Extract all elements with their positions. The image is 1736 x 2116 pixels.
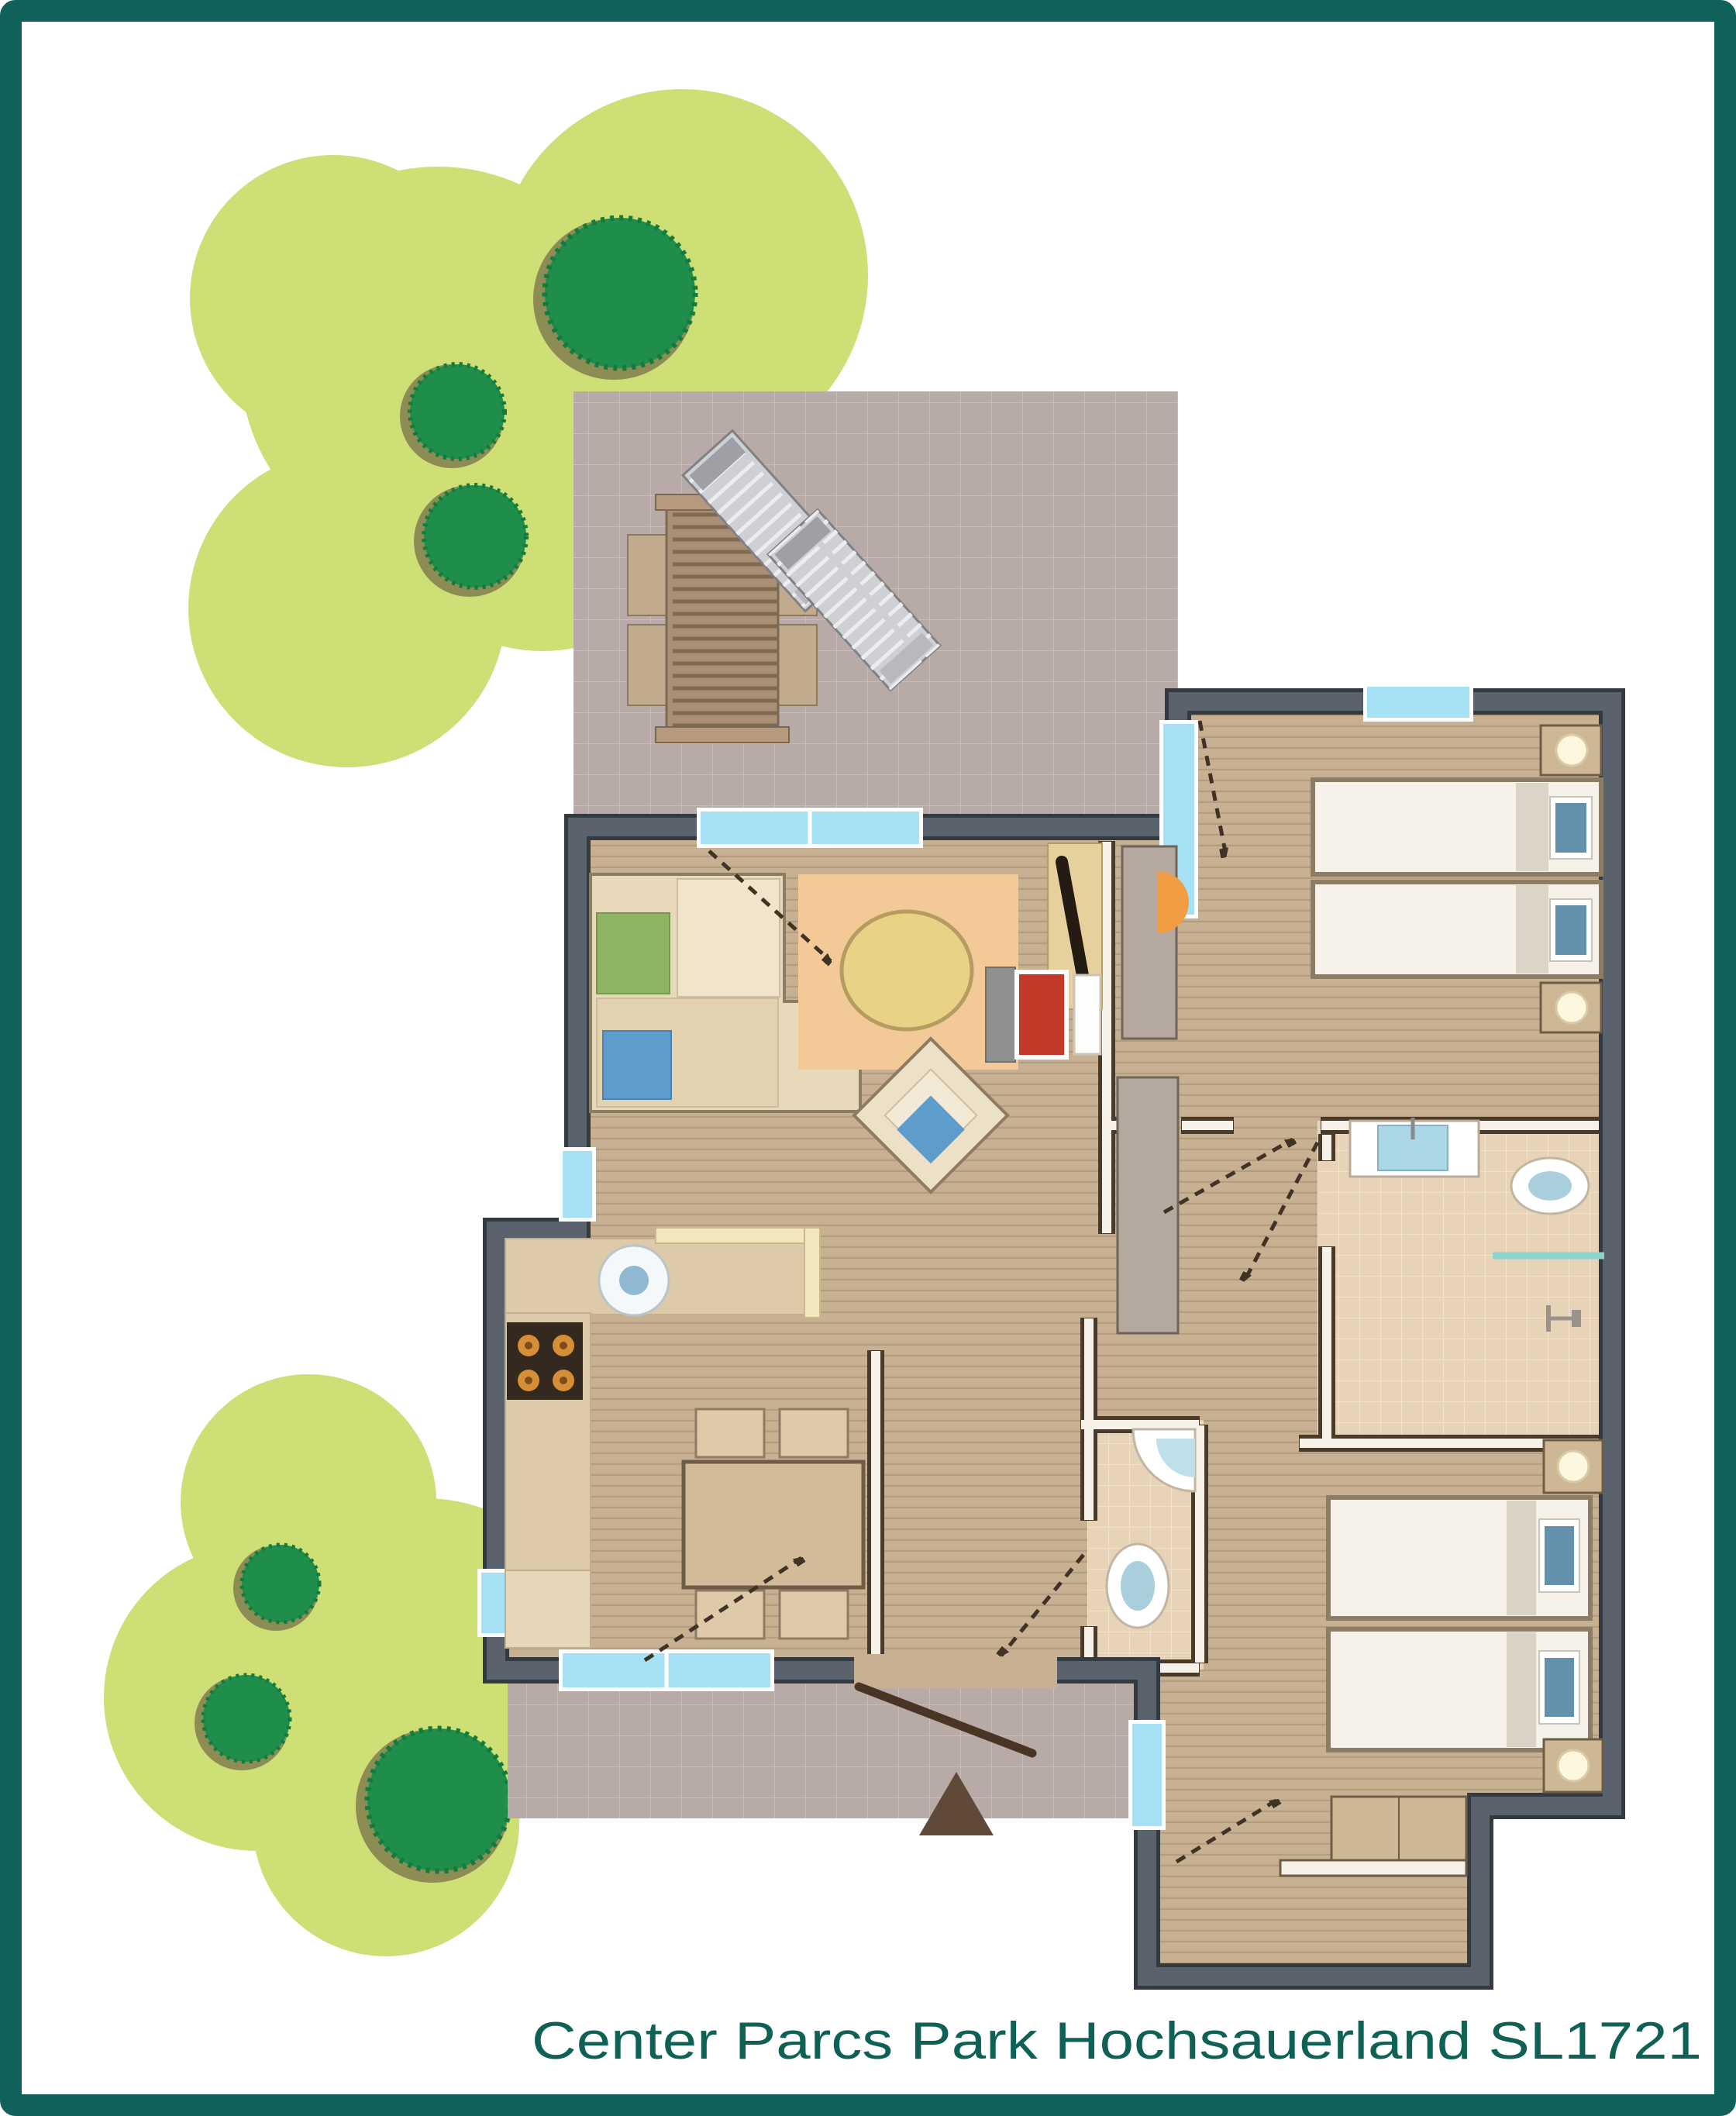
bed-fold (1507, 1632, 1536, 1747)
window (1132, 1724, 1162, 1826)
tree (242, 1545, 319, 1622)
kitchen-sink-basin (619, 1266, 649, 1295)
hob-burner-dot (560, 1377, 567, 1384)
lamp (1556, 735, 1587, 766)
pillow-blue (1545, 1526, 1574, 1585)
pillow-blue (1545, 1658, 1574, 1717)
terrace-chair (628, 535, 670, 615)
hob-burner-dot (525, 1377, 532, 1384)
sofa-cushion-blue (603, 1031, 671, 1099)
stove-bench (1074, 975, 1100, 1054)
coffee-table (842, 912, 972, 1029)
dining-table (684, 1462, 863, 1587)
kitchen-bar-edge (656, 1228, 820, 1243)
lamp (1558, 1750, 1589, 1781)
hall-wardrobe (1118, 1077, 1178, 1333)
window (1367, 687, 1469, 718)
tree (545, 218, 695, 368)
stove-red (1017, 972, 1066, 1057)
tree (203, 1675, 290, 1762)
toilet-lid (1121, 1561, 1155, 1611)
caption-text: Center Parcs Park Hochsauerland SL1721 (532, 2011, 1702, 2070)
kitchen-cabinet (505, 1570, 591, 1648)
window (563, 1151, 592, 1218)
floor-plan-page: Center Parcs Park Hochsauerland SL1721 (0, 0, 1736, 2116)
sofa-cushion-green (597, 913, 670, 994)
hob-burner-dot (560, 1342, 567, 1349)
tree (410, 364, 505, 459)
dining-chair (780, 1590, 848, 1639)
lamp (1556, 992, 1587, 1023)
toilet-lid (1528, 1171, 1572, 1201)
floor-plan-svg: Center Parcs Park Hochsauerland SL1721 (0, 0, 1736, 2116)
bed-fold (1516, 885, 1548, 974)
hob (507, 1322, 583, 1400)
kitchen-bar-edge (804, 1228, 820, 1318)
sofa-cushion (677, 879, 780, 997)
hob-burner-dot (525, 1342, 532, 1349)
pillow-blue (1555, 803, 1586, 853)
tree (367, 1728, 510, 1871)
bed-fold (1507, 1501, 1536, 1615)
dining-chair (696, 1409, 764, 1457)
terrace-chair (628, 625, 670, 705)
bed-fold (1516, 783, 1548, 871)
shower-fitting (1572, 1310, 1581, 1327)
wardrobe-shelf (1280, 1860, 1466, 1876)
entrance-porch (508, 1682, 1147, 1818)
dining-chair (696, 1590, 764, 1639)
dining-chair (780, 1409, 848, 1457)
front-door-threshold (854, 1654, 1057, 1688)
terrace-table-end (656, 727, 789, 743)
pillow-blue (1555, 905, 1586, 955)
lamp (1558, 1451, 1589, 1482)
terrace-chair (775, 625, 817, 705)
tree (424, 485, 526, 588)
stove-base (986, 967, 1015, 1062)
